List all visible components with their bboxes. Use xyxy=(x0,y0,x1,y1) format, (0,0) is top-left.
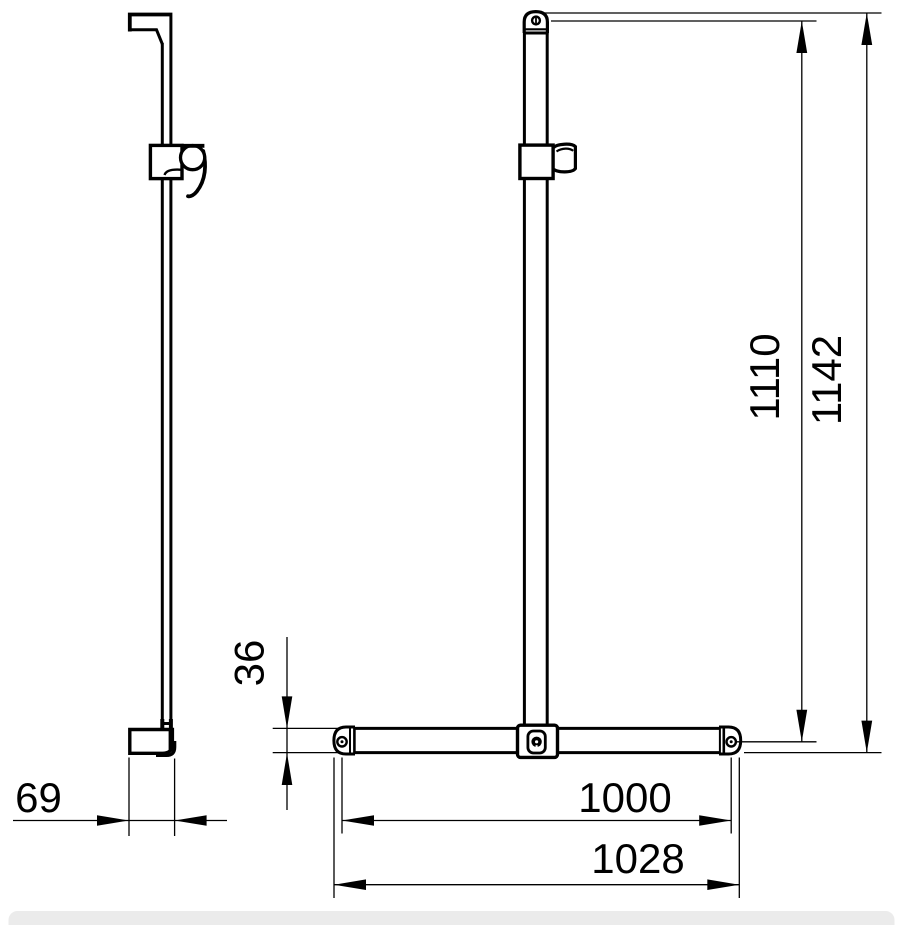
arrowhead xyxy=(282,696,293,728)
right-mount-hole-center xyxy=(730,740,733,743)
dimension-overall-height: 1142 xyxy=(540,13,882,753)
dim-label-overall-height: 1142 xyxy=(803,335,850,425)
slider-body-front xyxy=(520,145,553,178)
arrowhead xyxy=(97,815,129,826)
wall-bracket-side xyxy=(130,730,173,754)
arrowhead xyxy=(796,710,807,742)
arrowhead xyxy=(796,21,807,53)
dimension-crossbar-length: 1028 xyxy=(334,758,739,899)
dim-label-crossbar-length: 1028 xyxy=(591,835,684,882)
dim-label-height-to-hole: 1110 xyxy=(741,333,788,420)
drawing-stage: 69 36 1110 1142 1000 xyxy=(0,0,903,930)
arrowhead xyxy=(699,815,731,826)
dimension-crossbar-height: 36 xyxy=(226,637,341,810)
technical-drawing: 69 36 1110 1142 1000 xyxy=(0,0,903,925)
dimension-hole-spacing: 1000 xyxy=(342,758,731,834)
arrowhead xyxy=(342,815,374,826)
footer-scroll-bar xyxy=(9,911,895,925)
holder-ring xyxy=(181,146,205,170)
left-mount-hole-center xyxy=(341,740,344,743)
dim-label-crossbar-height: 36 xyxy=(226,640,273,687)
hanger-hook-inner xyxy=(128,30,162,44)
arrowhead xyxy=(861,13,872,45)
dim-label-hole-spacing: 1000 xyxy=(578,774,671,821)
dimension-side-depth: 69 xyxy=(13,758,227,837)
arrowhead xyxy=(175,815,207,826)
side-view xyxy=(128,13,205,756)
arrowhead xyxy=(282,753,293,785)
t-connector-screw-hole xyxy=(535,740,538,743)
front-view xyxy=(334,12,741,758)
arrowhead xyxy=(707,879,739,890)
arrowhead xyxy=(861,721,872,753)
arrowhead xyxy=(334,879,366,890)
dimension-height-to-hole: 1110 xyxy=(551,21,817,742)
dim-label-side-depth: 69 xyxy=(15,774,62,821)
